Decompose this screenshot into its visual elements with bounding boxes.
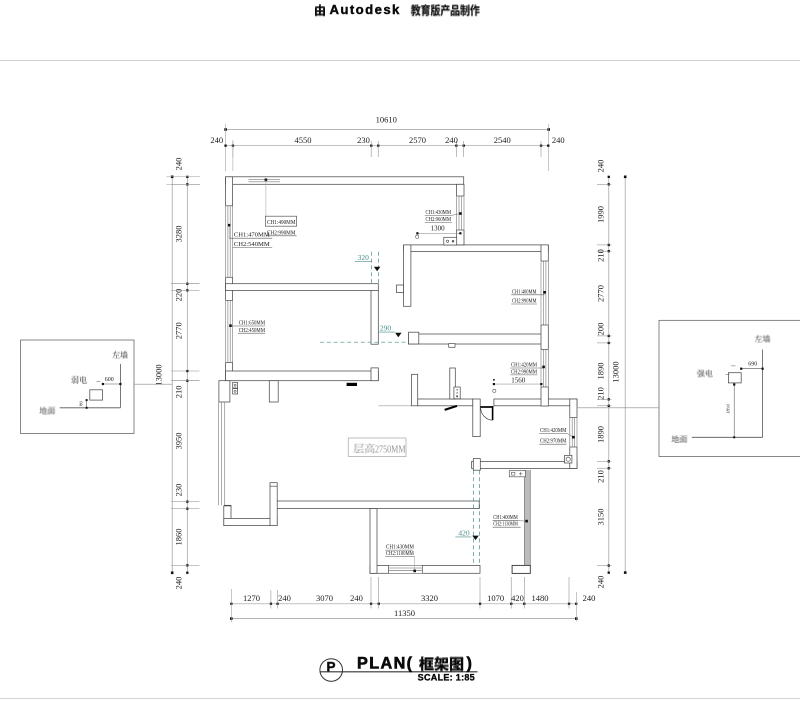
svg-text:CH2:970MM: CH2:970MM bbox=[540, 438, 567, 445]
svg-text:230: 230 bbox=[357, 135, 370, 145]
svg-text:290: 290 bbox=[380, 324, 392, 333]
svg-text:11350: 11350 bbox=[394, 608, 415, 618]
svg-text:4550: 4550 bbox=[295, 135, 312, 145]
svg-text:210: 210 bbox=[173, 386, 183, 399]
svg-text:1860: 1860 bbox=[173, 529, 183, 546]
svg-text:CH1:490MM: CH1:490MM bbox=[267, 219, 296, 226]
svg-text:1070: 1070 bbox=[487, 593, 504, 603]
svg-text:CH1:650MM: CH1:650MM bbox=[239, 320, 266, 327]
svg-text:2750MM: 2750MM bbox=[375, 444, 406, 455]
svg-text:240: 240 bbox=[595, 160, 605, 173]
svg-text:220: 220 bbox=[173, 289, 183, 302]
svg-text:210: 210 bbox=[595, 249, 605, 262]
svg-text:420: 420 bbox=[458, 528, 470, 537]
svg-text:240: 240 bbox=[445, 135, 458, 145]
svg-text:CH2:990MM: CH2:990MM bbox=[267, 229, 296, 236]
svg-text:240: 240 bbox=[350, 593, 363, 603]
svg-text:240: 240 bbox=[173, 158, 183, 171]
svg-text:1300: 1300 bbox=[431, 225, 446, 233]
svg-text:240: 240 bbox=[173, 577, 183, 590]
svg-text:PLAN(: PLAN( bbox=[357, 655, 413, 673]
svg-text:CH1:400MM: CH1:400MM bbox=[512, 288, 537, 295]
svg-text:3280: 3280 bbox=[173, 226, 183, 243]
svg-text:240: 240 bbox=[278, 593, 291, 603]
svg-text:1270: 1270 bbox=[243, 593, 260, 603]
svg-text:10610: 10610 bbox=[376, 115, 397, 125]
svg-text:230: 230 bbox=[173, 484, 183, 497]
svg-text:13000: 13000 bbox=[154, 364, 164, 385]
svg-text:600: 600 bbox=[105, 377, 114, 383]
svg-text:3950: 3950 bbox=[173, 433, 183, 450]
svg-text:80: 80 bbox=[80, 401, 85, 407]
svg-text:CH2:1130MM: CH2:1130MM bbox=[493, 521, 518, 528]
svg-text:240: 240 bbox=[210, 135, 223, 145]
svg-text:CH2:1100MM: CH2:1100MM bbox=[386, 550, 414, 557]
svg-text:1890: 1890 bbox=[595, 363, 605, 380]
svg-text:CH2:960MM: CH2:960MM bbox=[426, 216, 452, 223]
svg-text:3320: 3320 bbox=[421, 593, 438, 603]
svg-text:200: 200 bbox=[595, 323, 605, 336]
svg-text:1890: 1890 bbox=[595, 426, 605, 443]
svg-text:): ) bbox=[467, 655, 472, 673]
svg-text:CH2:990MM: CH2:990MM bbox=[511, 368, 537, 375]
svg-text:420: 420 bbox=[511, 593, 524, 603]
svg-text:210: 210 bbox=[595, 470, 605, 483]
svg-text:1850: 1850 bbox=[727, 404, 732, 415]
svg-text:690: 690 bbox=[748, 362, 757, 368]
svg-text:SCALE: 1:85: SCALE: 1:85 bbox=[418, 672, 475, 682]
svg-text:2770: 2770 bbox=[595, 285, 605, 302]
svg-text:Autodesk: Autodesk bbox=[330, 2, 401, 17]
svg-text:CH2:540MM: CH2:540MM bbox=[234, 241, 271, 248]
svg-text:240: 240 bbox=[552, 135, 565, 145]
svg-text:320: 320 bbox=[358, 253, 370, 262]
svg-text:240: 240 bbox=[595, 576, 605, 589]
svg-text:CH1:430MM: CH1:430MM bbox=[426, 209, 452, 216]
svg-text:2540: 2540 bbox=[494, 135, 511, 145]
svg-text:240: 240 bbox=[583, 593, 596, 603]
svg-text:3150: 3150 bbox=[595, 509, 605, 526]
svg-text:2770: 2770 bbox=[173, 322, 183, 339]
svg-text:1560: 1560 bbox=[511, 377, 526, 385]
svg-text:CH1:470MM: CH1:470MM bbox=[234, 232, 271, 239]
svg-text:1480: 1480 bbox=[532, 593, 549, 603]
svg-text:CH2:990MM: CH2:990MM bbox=[512, 298, 537, 305]
svg-text:2570: 2570 bbox=[409, 135, 426, 145]
svg-text:3070: 3070 bbox=[316, 593, 333, 603]
svg-text:210: 210 bbox=[595, 387, 605, 400]
svg-text:1990: 1990 bbox=[595, 206, 605, 223]
svg-text:CH2:450MM: CH2:450MM bbox=[239, 327, 266, 334]
svg-text:CH1:420MM: CH1:420MM bbox=[540, 427, 567, 434]
svg-text:13000: 13000 bbox=[610, 361, 620, 382]
